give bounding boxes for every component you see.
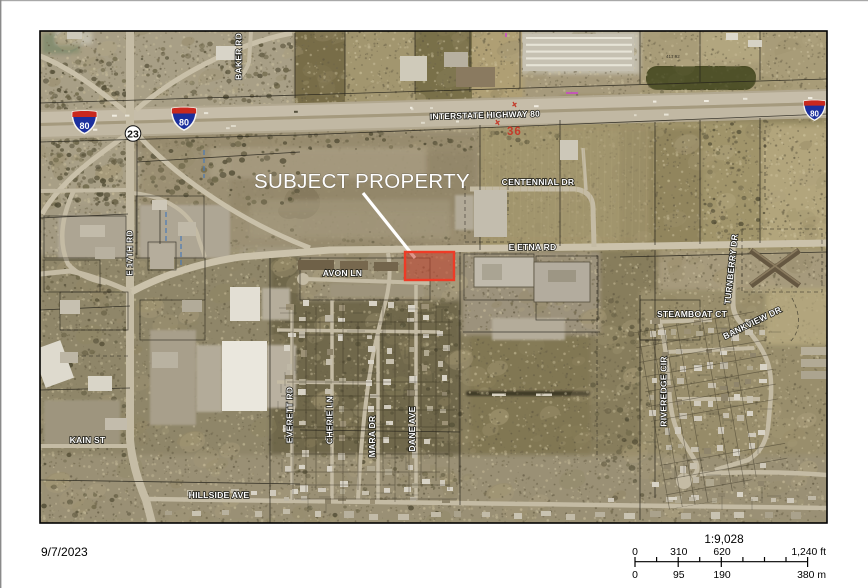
svg-text:0: 0 (632, 570, 638, 581)
svg-text:36: 36 (507, 126, 522, 138)
svg-text:CENTENNIAL DR: CENTENNIAL DR (502, 177, 575, 187)
svg-text:1,240 ft: 1,240 ft (791, 547, 826, 558)
svg-text:AVON LN: AVON LN (323, 268, 362, 278)
svg-text:STEAMBOAT CT: STEAMBOAT CT (657, 309, 728, 319)
svg-text:190: 190 (713, 570, 731, 581)
svg-text:CHERIE LN: CHERIE LN (325, 396, 335, 444)
svg-text:HILLSIDE AVE: HILLSIDE AVE (189, 490, 250, 500)
svg-text:DANE AVE: DANE AVE (407, 406, 417, 451)
svg-text:E 17TH RD: E 17TH RD (125, 230, 135, 276)
svg-text:KAIN ST: KAIN ST (70, 435, 106, 445)
svg-text:80: 80 (79, 121, 89, 131)
svg-text:1:9,028: 1:9,028 (704, 532, 744, 546)
svg-text:9/7/2023: 9/7/2023 (41, 545, 88, 559)
svg-text:SUBJECT PROPERTY: SUBJECT PROPERTY (254, 170, 470, 193)
svg-text:BAKER RD: BAKER RD (234, 33, 244, 80)
svg-text:MARA DR: MARA DR (367, 415, 377, 457)
svg-text:380 m: 380 m (797, 570, 826, 581)
svg-text:0: 0 (632, 547, 638, 558)
svg-text:95: 95 (673, 570, 685, 581)
svg-text:E ETNA RD: E ETNA RD (509, 242, 557, 252)
svg-text:23: 23 (127, 129, 139, 141)
svg-text:310: 310 (670, 547, 688, 558)
svg-text:417.92: 417.92 (666, 54, 680, 59)
svg-text:620: 620 (713, 547, 731, 558)
svg-text:80: 80 (810, 109, 819, 118)
svg-text:RIVEREDGE CIR: RIVEREDGE CIR (659, 356, 669, 427)
svg-text:EVERETT RD: EVERETT RD (285, 387, 295, 443)
svg-text:80: 80 (179, 118, 189, 128)
